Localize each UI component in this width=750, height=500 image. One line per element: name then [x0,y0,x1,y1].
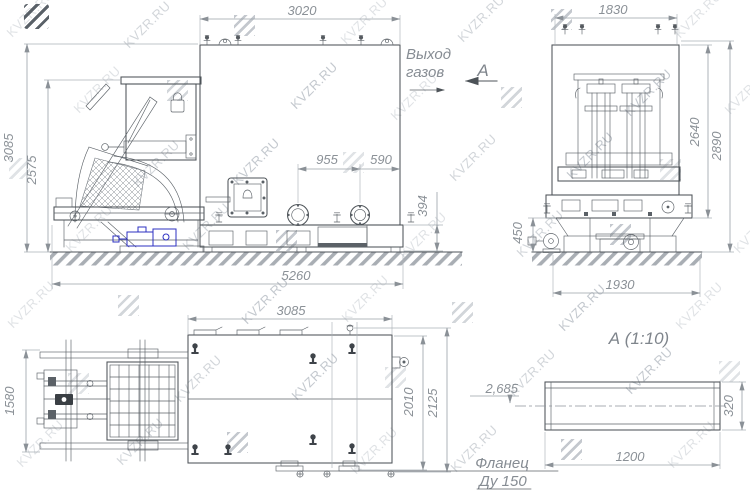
detail-a-title: А (1:10) [608,329,669,348]
kvzr-logo-icon [24,4,49,29]
flange-note-line1: Фланец [475,455,529,472]
front-ground [50,252,462,266]
front-dimensions: 3020 3085 2575 955 590 394 5260 [1,3,443,289]
flange-callout: Фланец Ду 150 [300,455,558,490]
side-ground [532,252,702,266]
dim-flange-spacing: 955 [316,152,338,167]
dim-detail-length: 1200 [616,449,646,464]
elevation-value: 2,685 [484,381,518,396]
dim-side-width-top: 1830 [599,2,629,17]
dim-plan-body-width: 2010 [401,387,416,418]
dim-detail-height: 320 [721,394,736,416]
side-legs [528,218,684,253]
technical-drawing: Выход газов А [0,0,750,500]
dim-side-height-overall: 2890 [709,131,724,162]
view-a-label: А [476,61,488,80]
dim-flange-to-edge: 590 [370,152,392,167]
view-a-arrow: А [466,61,497,81]
front-hopper [121,77,201,160]
dim-side-width-base: 1930 [606,277,636,292]
side-base-frame [544,195,692,218]
front-inspection-door [206,178,267,217]
dim-front-base-height: 394 [415,195,430,217]
gas-outlet-label-1: Выход [406,46,451,63]
plan-tipper [37,340,188,461]
dim-front-height-overall: 3085 [1,133,16,163]
detail-a-dimensions: 320 1200 [545,382,746,469]
dim-plan-overall-width: 2125 [425,388,440,419]
elevation-mark: 2,685 [470,381,519,403]
front-base-frame [200,225,403,252]
front-drive-motor [113,227,176,246]
detail-a-view: А (1:10) 2,685 320 1200 [470,329,746,469]
gas-outlet-label-2: газов [406,64,444,81]
front-tipper-mechanism [68,84,196,247]
dim-side-height-body: 2640 [687,117,702,148]
side-inner-hopper [574,74,664,178]
side-view: 1830 2640 2890 450 1930 [510,2,734,297]
drain-valve-icon [334,213,341,222]
drawing-canvas: KVZR.RUKVZR.RUKVZR.RUKVZR.RUKVZR.RUKVZR.… [0,0,750,500]
front-view: Выход газов А [1,3,497,289]
dim-front-height-hopper: 2575 [24,155,39,186]
drain-valve-icon [408,213,415,222]
dim-side-base-height: 450 [510,221,525,243]
plan-body [188,322,409,468]
drain-valve-icon [216,213,223,222]
front-pipe-flanges [287,204,369,225]
flange-note-line2: Ду 150 [477,473,527,490]
plan-view: 3085 1580 2010 2125 Фланец Ду 150 [2,303,558,490]
side-mid-frame [558,153,680,181]
gas-outlet-callout: Выход газов [406,46,451,90]
dim-plan-length: 3085 [277,303,307,318]
dim-plan-tipper-width: 1580 [2,386,17,416]
dim-front-width-top: 3020 [288,3,318,18]
front-furnace-body [200,35,400,225]
dim-front-length-overall: 5260 [282,268,312,283]
